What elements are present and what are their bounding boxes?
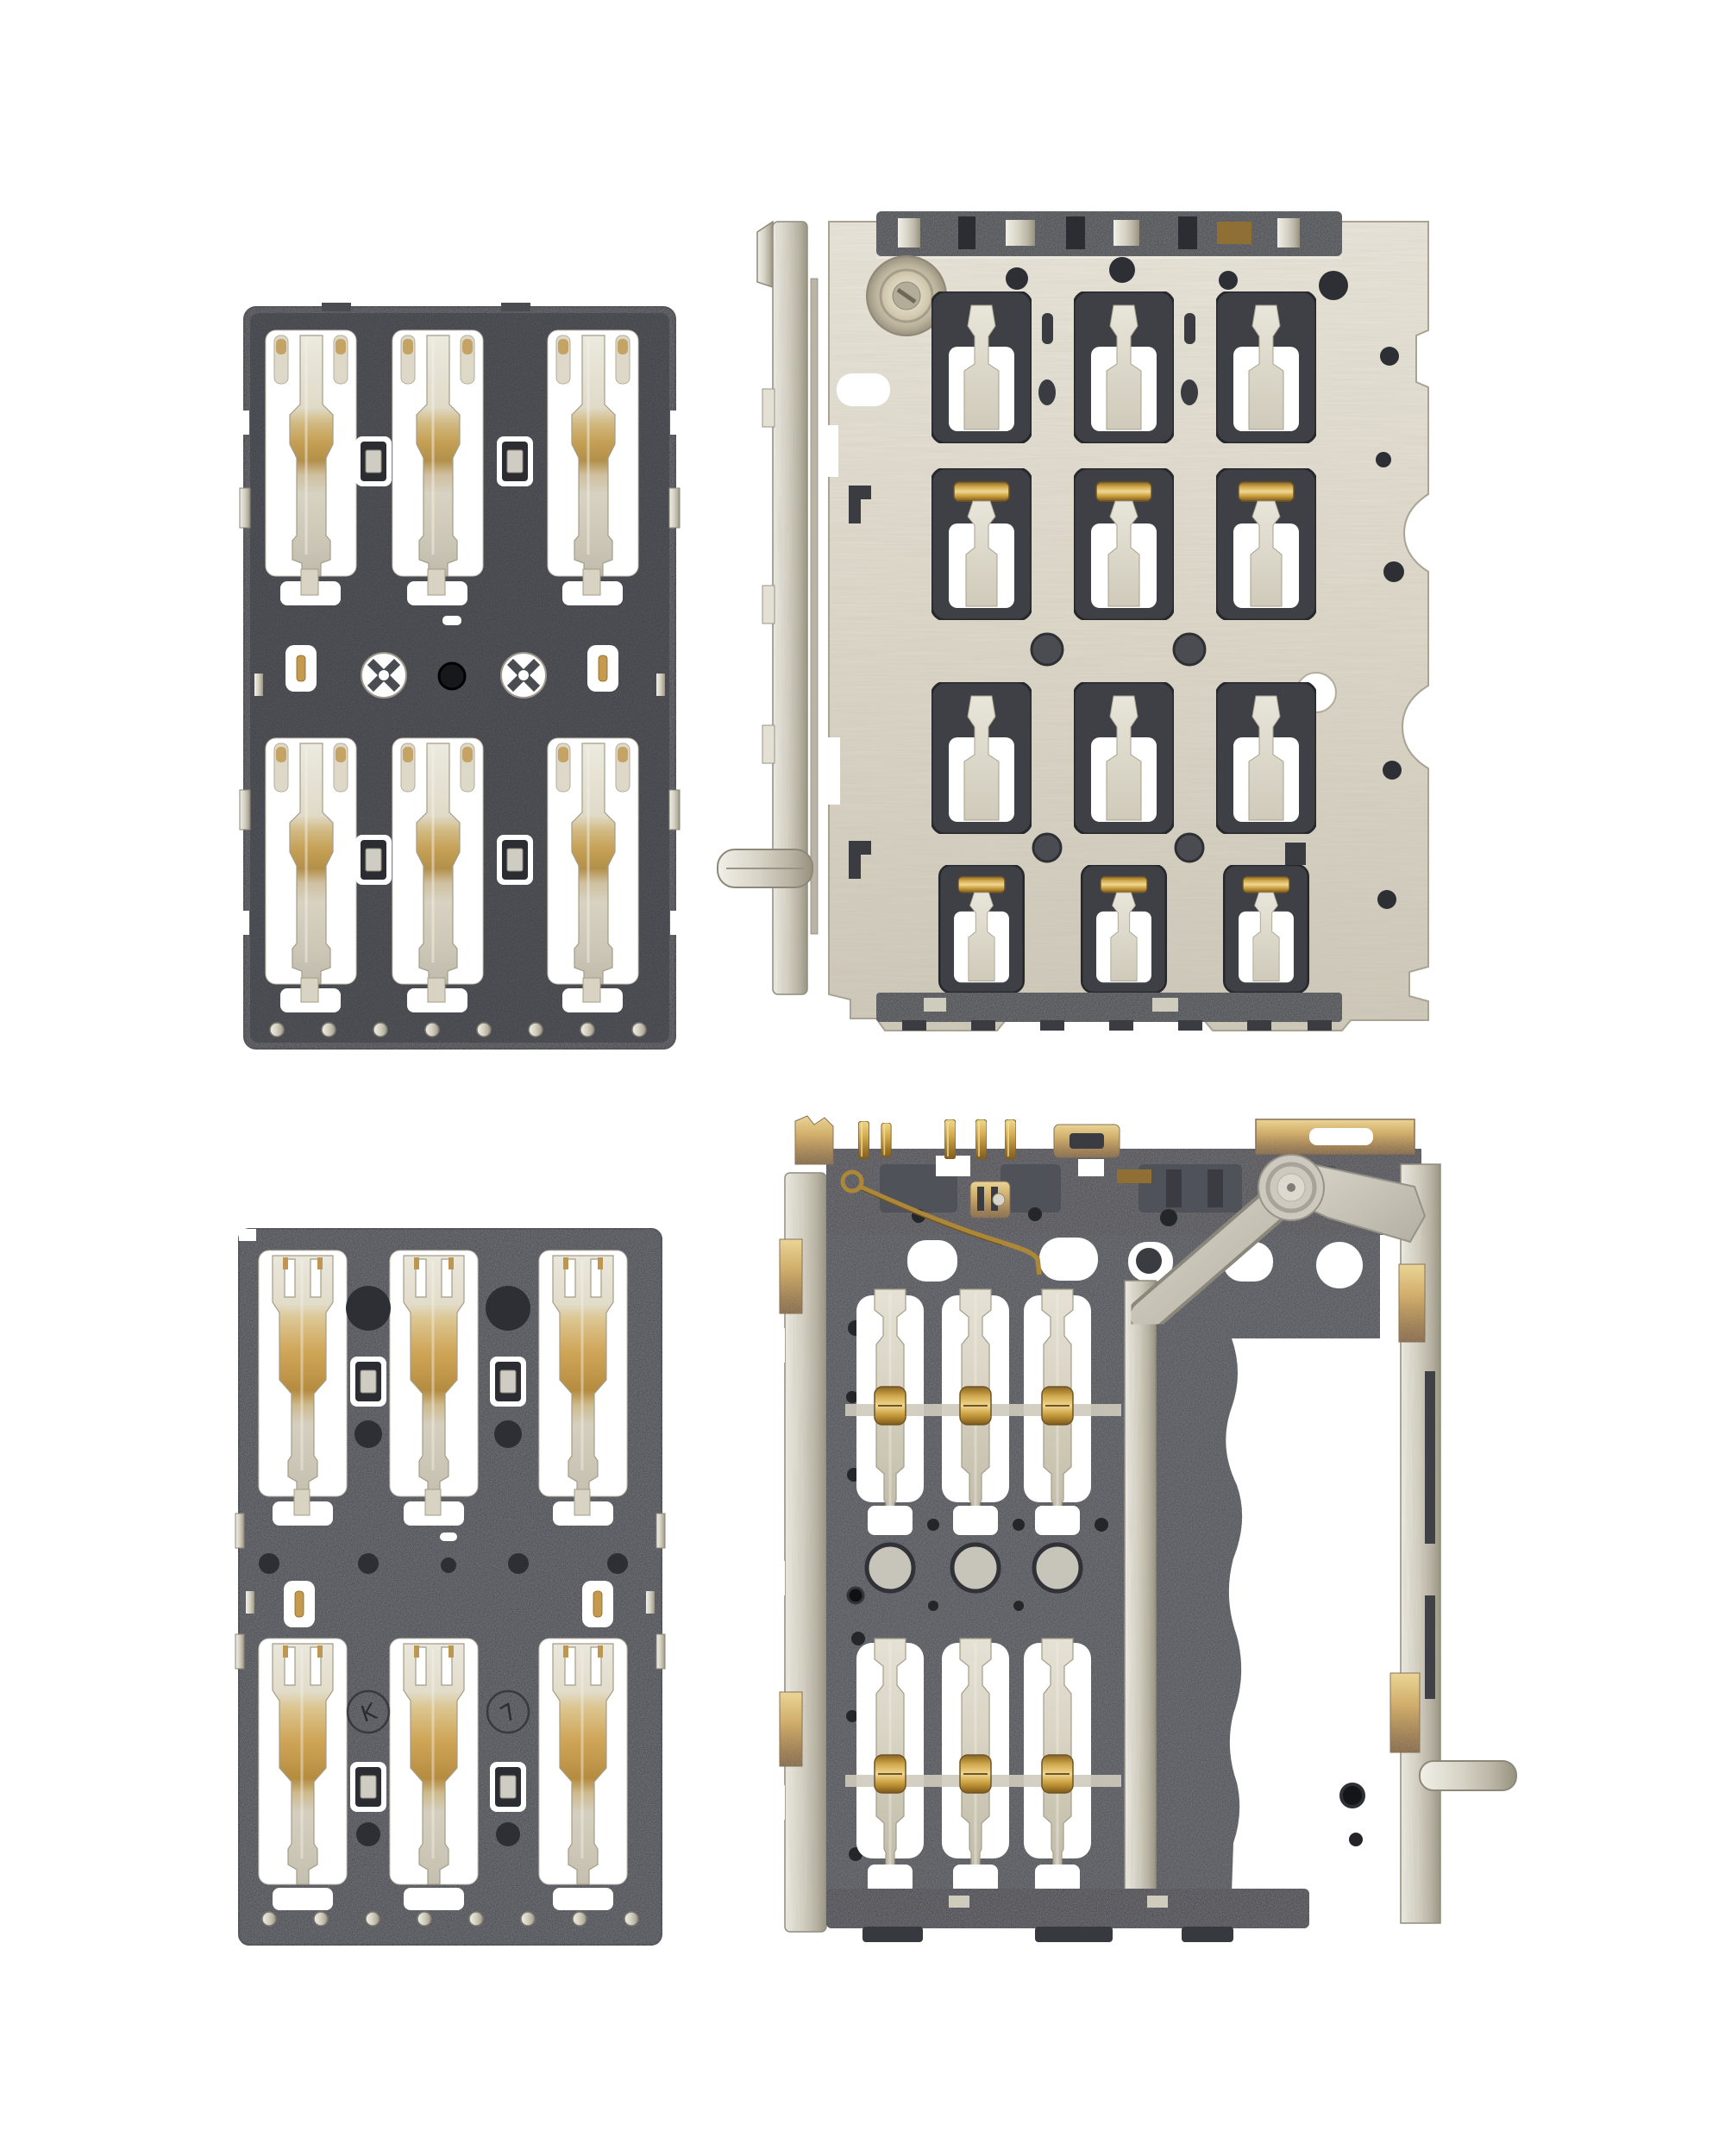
right-rail-foot [1420,1761,1516,1790]
gold-bracket [795,1116,833,1164]
reader-shielded [718,211,1428,1031]
corner-notch [239,1229,256,1241]
sim-reader-set-photo: K 7 [0,0,1725,2156]
spring-contact-gold [259,1639,347,1884]
gold-edge-pad [1399,1264,1425,1342]
spring-contact [548,738,638,984]
smd-pad [490,1762,526,1812]
connector-a [240,303,680,1049]
gold-slot [284,1581,315,1627]
gold-pin [858,1121,869,1159]
smd-pad [355,835,392,885]
contact-window [931,291,1032,443]
reader-open-upper-contacts [845,1289,1121,1535]
gold-edge-pad [780,1692,802,1766]
contact-window [1224,865,1308,993]
reader-open-left-rail [776,1173,826,1932]
smd-pad [497,835,533,885]
alignment-dot [439,663,465,689]
contact-window [1074,468,1174,620]
gold-pin [944,1119,956,1159]
spring-contact-gold [539,1250,627,1496]
reader-open-lower-contacts [845,1639,1121,1894]
gold-roller-bumps [875,1387,1073,1425]
contact-window [1216,291,1316,443]
reader-open-base-right-strip [1145,1338,1242,1893]
spring-contact-gold [390,1639,478,1884]
smd-pad [355,436,392,486]
smd-pad [497,436,533,486]
contact-window [1074,682,1174,834]
spring-contact [392,738,483,984]
gold-edge-pad [780,1239,802,1313]
gold-edge-pad [1390,1673,1420,1752]
reader-open [776,1116,1516,1942]
gold-pin [975,1119,987,1159]
spring-contact [266,738,356,984]
reader-open-inner-rail [1125,1281,1156,1897]
gold-slot [587,645,618,692]
connector-b-top-contacts [259,1250,627,1526]
contact-window [939,865,1024,993]
connector-a-top-contacts [266,330,638,605]
connector-a-bottom-contacts [266,738,638,1012]
contact-window [1216,682,1316,834]
contact-window [1216,468,1316,620]
gold-slot [285,645,317,692]
contact-window [1082,865,1166,993]
gold-pin [881,1123,891,1157]
spring-contact [266,330,356,576]
contact-window [1074,291,1174,443]
contact-window [931,682,1032,834]
lever-pivot-rivet [1258,1155,1324,1220]
smd-pad [490,1357,526,1407]
product-photo-canvas: K 7 [0,0,1725,2156]
spring-contact [392,330,483,576]
gold-roller-bumps [875,1755,1073,1793]
spring-contact-gold [390,1250,478,1496]
alignment-dot [1341,1784,1364,1807]
smd-pad [350,1357,386,1407]
spring-contact [548,330,638,576]
spring-contact-gold [259,1250,347,1496]
alignment-dot [848,1588,863,1603]
connector-b-bottom-contacts: K 7 [259,1639,627,1910]
gold-pin [1005,1119,1016,1159]
shield-top-comb [876,211,1342,258]
smd-pad [350,1762,386,1812]
contact-window [931,468,1032,620]
spring-contact-gold [539,1639,627,1884]
connector-b: K 7 [235,1229,665,1945]
reader-open-bottom-band [826,1889,1309,1942]
gold-slot [582,1581,613,1627]
reader-shielded-eject-rail [718,222,818,994]
